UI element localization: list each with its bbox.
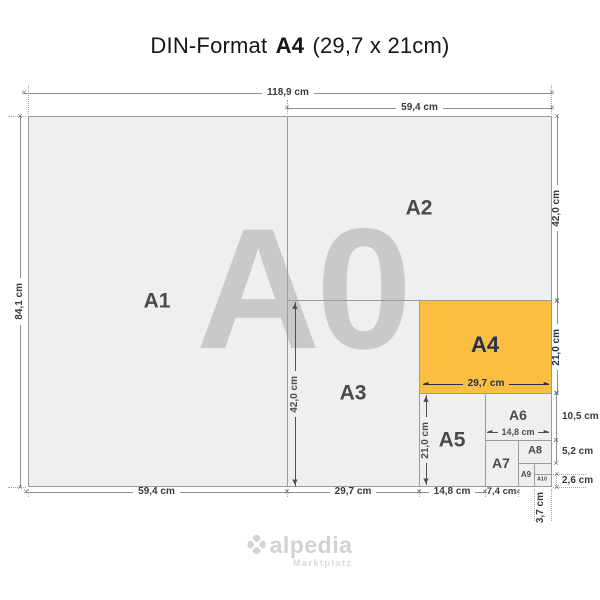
- dim-line: [295, 302, 296, 371]
- format-label-a5: A5: [439, 430, 466, 451]
- dim-line: [20, 116, 21, 278]
- format-label-a9: A9: [521, 471, 531, 479]
- dim-a2-width-top: 59,4 cm: [287, 103, 552, 113]
- dim-label: 59,4 cm: [133, 487, 180, 497]
- dim-line: [517, 492, 518, 493]
- dim-label: 21,0 cm: [421, 417, 431, 464]
- dim-line: [557, 116, 558, 185]
- brand-text-block: alpedia Marktplatz: [270, 534, 353, 568]
- dim-line: [287, 108, 396, 109]
- title-prefix: DIN-Format: [150, 33, 267, 58]
- divider-a9-right: [534, 463, 535, 487]
- dim-line: [487, 432, 498, 433]
- dim-line: [180, 492, 287, 493]
- dim-label: 10,5 cm: [562, 412, 599, 422]
- page-title: DIN-Format A4 (29,7 x 21cm): [0, 33, 600, 59]
- title-format-highlight: A4: [276, 33, 305, 58]
- format-label-a10: A10: [537, 477, 547, 483]
- brand-tagline: Marktplatz: [270, 558, 353, 568]
- dim-label: 42,0 cm: [290, 371, 300, 418]
- dim-line: [556, 474, 558, 487]
- divider-a8-bottom: [518, 463, 552, 464]
- dim-a4-width-inner: 29,7 cm: [423, 379, 549, 389]
- dim-a5-height-inner: 21,0 cm: [420, 395, 432, 485]
- dim-line: [20, 325, 21, 487]
- dim-label: 42,0 cm: [552, 185, 562, 232]
- extension-line: [551, 489, 552, 521]
- dim-line: [423, 384, 463, 385]
- dim-label: 29,7 cm: [330, 487, 377, 497]
- din-format-diagram: DIN-Format A4 (29,7 x 21cm) A0 A1 A2 A3 …: [0, 0, 600, 600]
- dim-line: [426, 395, 427, 417]
- divider-a10-top: [534, 474, 552, 475]
- dim-label: 59,4 cm: [396, 103, 443, 113]
- dim-label: 14,8 cm: [429, 487, 476, 497]
- format-label-a8: A8: [528, 446, 542, 457]
- divider-a1-right: [287, 116, 288, 487]
- dim-a10-width: 3,7 cm: [536, 492, 546, 523]
- dim-label: 29,7 cm: [463, 379, 510, 389]
- dim-a3-width-bottom: 29,7 cm: [287, 487, 419, 497]
- dim-line: [557, 231, 558, 300]
- dim-line: [376, 492, 419, 493]
- dim-a4-height: 21,0 cm: [551, 301, 563, 393]
- dim-line: [24, 93, 262, 94]
- format-label-a2: A2: [406, 198, 433, 219]
- dim-line: [485, 492, 486, 493]
- dim-a0-width: 118,9 cm: [24, 88, 552, 98]
- dim-label: 5,2 cm: [562, 447, 593, 457]
- dim-label: 7,4 cm: [486, 487, 518, 497]
- dim-a6-height: 10,5 cm: [552, 393, 592, 440]
- dim-line: [419, 492, 429, 493]
- dim-line: [287, 492, 330, 493]
- format-label-a1: A1: [144, 291, 171, 312]
- watermark-a0: A0: [196, 203, 408, 375]
- dim-line: [509, 384, 549, 385]
- dim-a8-height: 5,2 cm: [552, 440, 592, 463]
- format-label-a4: A4: [471, 334, 499, 356]
- title-suffix: (29,7 x 21cm): [312, 33, 449, 58]
- dim-line: [314, 93, 552, 94]
- dim-label: 118,9 cm: [262, 88, 314, 98]
- dim-a10-height: 2,6 cm: [552, 474, 592, 487]
- alpedia-flower-icon: [248, 535, 266, 559]
- format-label-a3: A3: [340, 383, 367, 404]
- dim-a6-width-inner: 14,8 cm: [487, 427, 549, 437]
- dim-label: 21,0 cm: [552, 324, 562, 371]
- dim-a5-width-bottom: 14,8 cm: [419, 487, 485, 497]
- dim-label: 14,8 cm: [498, 428, 537, 437]
- format-label-a7: A7: [492, 456, 510, 470]
- dim-line: [556, 393, 557, 440]
- dim-line: [426, 463, 427, 485]
- dim-a3-height-inner: 42,0 cm: [289, 302, 301, 486]
- dim-line: [556, 440, 557, 463]
- format-label-a6: A6: [509, 408, 527, 422]
- dim-a1-width-bottom: 59,4 cm: [26, 487, 287, 497]
- dim-a2-height: 42,0 cm: [551, 116, 563, 300]
- brand-logo: alpedia Marktplatz: [248, 534, 353, 568]
- dim-line: [295, 417, 296, 486]
- dim-line: [557, 301, 558, 324]
- brand-name: alpedia: [270, 534, 353, 557]
- dim-line: [443, 108, 552, 109]
- dim-label: 2,6 cm: [562, 476, 593, 486]
- dim-a7-width-bottom: 7,4 cm: [485, 487, 518, 497]
- dim-label: 84,1 cm: [15, 278, 25, 325]
- dim-line: [26, 492, 133, 493]
- dim-line: [538, 432, 549, 433]
- dim-a0-height: 84,1 cm: [14, 116, 26, 487]
